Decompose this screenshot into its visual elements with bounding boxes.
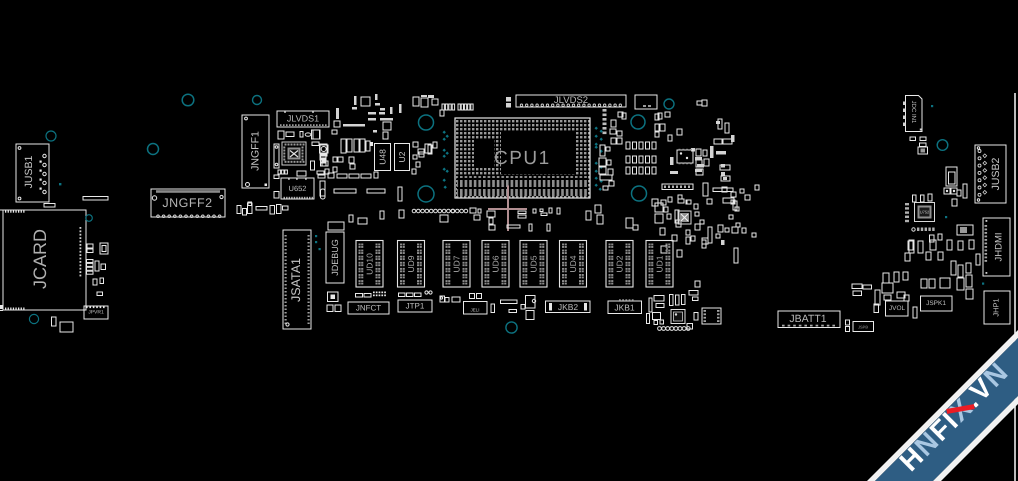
svg-text:UD7: UD7 — [452, 255, 462, 272]
svg-text:JCARD: JCARD — [30, 229, 50, 289]
svg-text:JELI: JELI — [470, 308, 479, 313]
svg-text:JNFCT: JNFCT — [356, 304, 381, 313]
svg-text:UD1: UD1 — [655, 255, 665, 272]
svg-text:U752: U752 — [920, 210, 930, 215]
svg-text:JLVDS1: JLVDS1 — [287, 114, 319, 124]
svg-text:UD5: UD5 — [529, 255, 539, 272]
svg-text:U2: U2 — [397, 151, 407, 162]
svg-text:UD2: UD2 — [615, 255, 625, 272]
svg-text:JBATT1: JBATT1 — [789, 313, 826, 325]
svg-text:JTP1: JTP1 — [406, 302, 425, 311]
svg-text:JDC IN1: JDC IN1 — [910, 101, 917, 124]
svg-text:JKB1: JKB1 — [614, 303, 635, 313]
svg-text:U48: U48 — [378, 149, 388, 165]
svg-text:JHDMI: JHDMI — [994, 232, 1005, 261]
svg-text:JUSB1: JUSB1 — [23, 156, 35, 189]
svg-text:UD4: UD4 — [568, 255, 578, 272]
svg-text:JNGFF2: JNGFF2 — [162, 196, 212, 210]
svg-text:UD6: UD6 — [491, 255, 501, 272]
svg-text:JKB2: JKB2 — [558, 302, 579, 312]
svg-text:JNGFF1: JNGFF1 — [250, 131, 262, 171]
svg-text:UD10: UD10 — [365, 253, 375, 275]
svg-text:U652: U652 — [289, 184, 307, 193]
svg-text:JSATA1: JSATA1 — [289, 258, 303, 302]
svg-text:JHP1: JHP1 — [992, 298, 1001, 316]
svg-text:JSPB: JSPB — [858, 325, 868, 330]
svg-text:JSPK1: JSPK1 — [926, 300, 946, 307]
svg-text:JUSB2: JUSB2 — [990, 158, 1002, 191]
svg-text:CPU1: CPU1 — [494, 148, 551, 169]
svg-text:UD9: UD9 — [406, 255, 416, 272]
svg-text:JDEBUG: JDEBUG — [330, 239, 340, 276]
svg-text:JPVR1: JPVR1 — [88, 310, 104, 316]
svg-text:JVOL: JVOL — [889, 305, 906, 312]
